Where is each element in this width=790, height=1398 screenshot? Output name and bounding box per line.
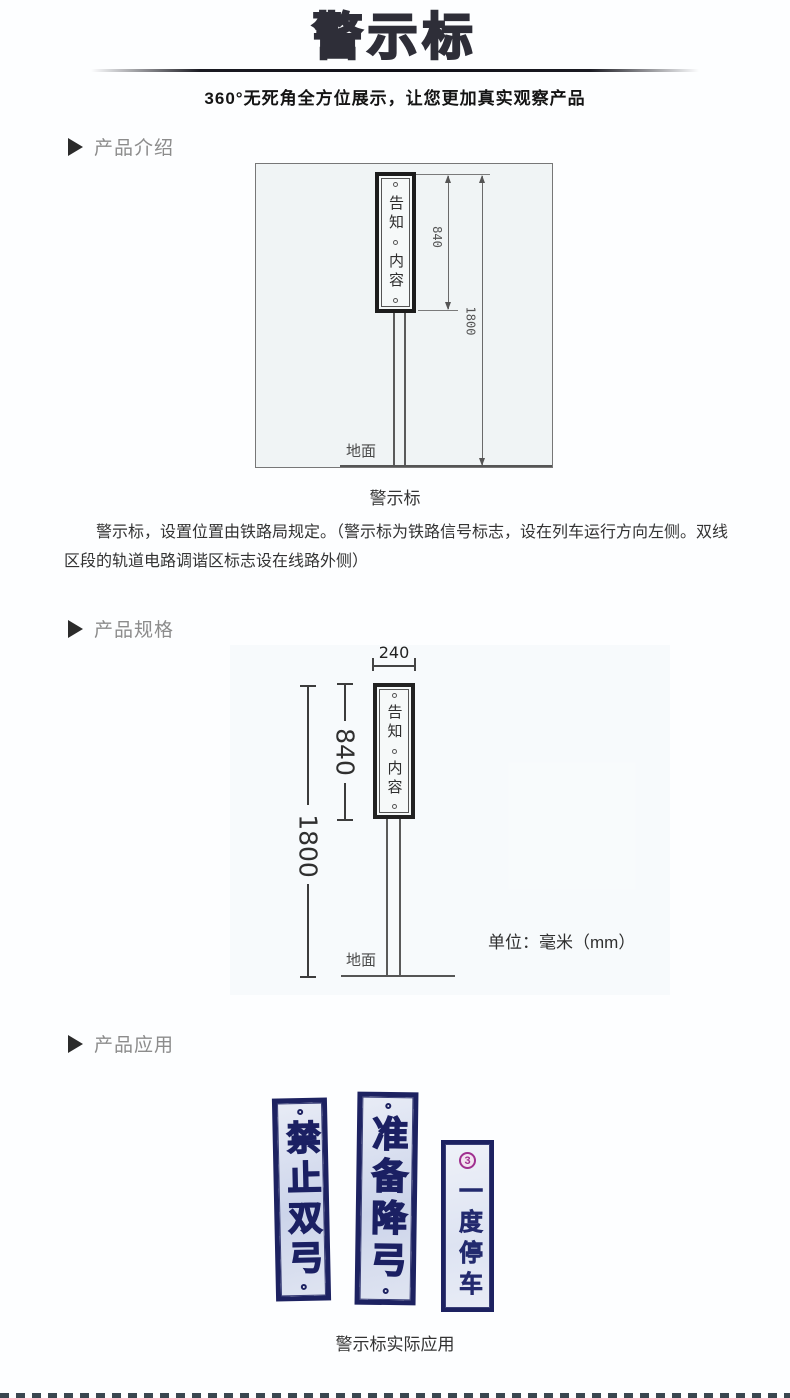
- section-header-intro: 产品介绍: [68, 133, 174, 160]
- arrow-up-icon: [479, 175, 485, 183]
- dimension-line-1800: [482, 176, 483, 465]
- sign-photo-text: 一度停车: [456, 1178, 480, 1302]
- ground-line: [340, 465, 552, 467]
- arrow-down-icon: [479, 458, 485, 466]
- application-photos: 禁止双弓 准备降弓 3 一度停车: [0, 1080, 790, 1326]
- triangle-bullet-icon: [68, 138, 83, 156]
- arrow-up-icon: [445, 175, 451, 183]
- dimension-line-segment: [307, 687, 309, 805]
- specs-technical-drawing: 240 告知 内容 地面 840: [230, 645, 670, 995]
- dimension-line-240: [373, 665, 415, 667]
- product-detail-page: 警示标 360°无死角全方位展示，让您更加真实观察产品 产品介绍 告知 内容 地…: [0, 0, 790, 1398]
- sign-pole: [393, 313, 406, 466]
- ground-label: 地面: [346, 949, 376, 970]
- sign-photo-text: 准备降弓: [367, 1114, 405, 1282]
- section-header-application: 产品应用: [68, 1030, 174, 1057]
- mounting-hole-icon: [393, 240, 398, 245]
- dimension-tick: [414, 658, 416, 671]
- sign-pole: [386, 819, 401, 975]
- page-title: 警示标: [0, 0, 790, 65]
- arrow-down-icon: [445, 302, 451, 310]
- circled-emblem-icon: 3: [459, 1152, 476, 1169]
- dimension-tick: [300, 976, 316, 978]
- sign-photo-zhunbeijianggong: 准备降弓: [355, 1092, 419, 1306]
- mounting-hole-icon: [393, 298, 398, 303]
- sign-photo-jinzhishuanggong: 禁止双弓: [272, 1097, 331, 1301]
- diagram-caption: 警示标: [0, 484, 790, 509]
- dimension-line-segment: [344, 685, 346, 721]
- product-description: 警示标，设置位置由铁路局规定。（警示标为铁路信号标志，设在列车运行方向左侧。双线…: [64, 518, 728, 576]
- header: 警示标 360°无死角全方位展示，让您更加真实观察产品: [0, 0, 790, 109]
- dimension-label-840: 840: [331, 728, 360, 776]
- ground-line: [341, 975, 455, 977]
- dimension-1800: 1800: [300, 685, 316, 978]
- mounting-hole-icon: [392, 804, 397, 809]
- triangle-bullet-icon: [68, 1035, 83, 1053]
- unit-note: 单位：毫米（mm）: [488, 928, 635, 953]
- mounting-hole-icon: [385, 1103, 391, 1109]
- dimension-line-segment: [307, 884, 309, 976]
- dimension-label-840: 840: [430, 226, 444, 248]
- mounting-hole-icon: [392, 749, 397, 754]
- mounting-hole-icon: [382, 1288, 388, 1294]
- bottom-dashed-edge: [0, 1393, 790, 1398]
- mounting-hole-icon: [300, 1284, 306, 1290]
- section-label: 产品应用: [94, 1030, 174, 1057]
- sign-plate-inner: 告知 内容: [379, 689, 409, 813]
- sign-plate: 告知 内容: [375, 172, 416, 313]
- mounting-hole-icon: [392, 693, 397, 698]
- photos-caption: 警示标实际应用: [0, 1330, 790, 1355]
- sign-plate-text-top: 告知: [387, 704, 402, 742]
- section-label: 产品规格: [94, 615, 174, 642]
- sign-photo-text: 禁止双弓: [283, 1119, 320, 1280]
- sign-plate-text-bottom: 内容: [387, 760, 402, 798]
- section-label: 产品介绍: [94, 133, 174, 160]
- mounting-hole-icon: [297, 1109, 303, 1115]
- page-subtitle: 360°无死角全方位展示，让您更加真实观察产品: [0, 84, 790, 109]
- intro-technical-drawing: 告知 内容 地面 840 1800: [255, 163, 553, 468]
- sign-plate: 告知 内容: [373, 683, 415, 819]
- dimension-line-840: [448, 176, 449, 309]
- ground-label: 地面: [346, 440, 376, 461]
- sign-plate-text-bottom: 内容: [388, 253, 403, 291]
- section-header-specs: 产品规格: [68, 615, 174, 642]
- sign-plate-inner: 告知 内容: [381, 178, 410, 307]
- sign-plate-text-top: 告知: [388, 195, 403, 233]
- triangle-bullet-icon: [68, 620, 83, 638]
- title-divider: [91, 69, 699, 72]
- dimension-label-240: 240: [368, 643, 420, 662]
- dimension-line-segment: [344, 783, 346, 819]
- dimension-label-1800: 1800: [294, 814, 323, 878]
- dimension-label-1800: 1800: [463, 307, 477, 336]
- dimension-tick: [372, 658, 374, 671]
- sign-photo-yidutingche: 3 一度停车: [441, 1140, 494, 1312]
- mounting-hole-icon: [393, 182, 398, 187]
- extension-line: [418, 310, 458, 311]
- dimension-840: 840: [337, 683, 353, 821]
- dimension-tick: [337, 819, 353, 821]
